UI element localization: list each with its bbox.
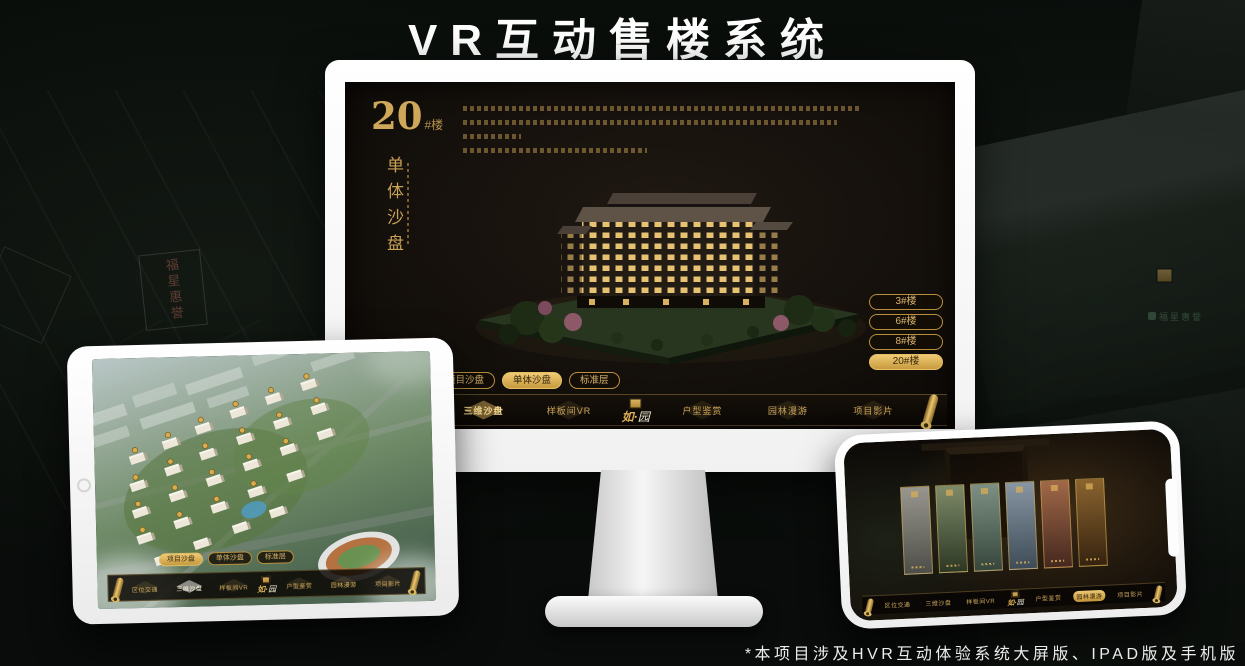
scroll-brush-icon[interactable] [409, 569, 421, 592]
tab-single-sandbox[interactable]: 单体沙盘 [208, 551, 252, 565]
building-heading: 20#楼 [371, 98, 443, 135]
gallery-card-1[interactable] [900, 486, 933, 575]
app-logo-text: 如·园 [622, 411, 650, 423]
developer-sign-watermark: 福星惠誉 [138, 249, 208, 331]
phone-notch [1165, 478, 1180, 556]
seal-icon [262, 575, 271, 583]
nav-item-showroom-vr[interactable]: 样板间VR [536, 401, 602, 419]
nav-item-garden-roam[interactable]: 园林漫游 [1073, 589, 1105, 601]
tablet-app-screen: 项目沙盘 单体沙盘 标准层 区位交通 三维沙盘 样板间VR 如·园 户型鉴赏 园… [92, 351, 436, 609]
building-number-suffix: #楼 [425, 118, 444, 132]
developer-logo-icon [1148, 312, 1156, 320]
tab-project-sandbox[interactable]: 项目沙盘 [159, 552, 203, 566]
seal-icon [1156, 268, 1173, 283]
nav-item-3d-sandbox[interactable]: 三维沙盘 [922, 596, 954, 608]
nav-item-garden-roam[interactable]: 园林漫游 [322, 573, 364, 592]
scroll-brush-icon[interactable] [1154, 584, 1163, 600]
poster-canvas: 福星惠誉 福星惠誉 VR互动售楼系统 20#楼 单体沙盘 [0, 0, 1245, 666]
scroll-brush-icon[interactable] [112, 577, 124, 600]
footnote-text: *本项目涉及HVR互动体验系统大屏版、IPAD版及手机版 [745, 640, 1239, 664]
monitor-stand-base [545, 596, 763, 627]
nav-item-project-film[interactable]: 项目影片 [367, 572, 409, 591]
phone-app-screen: 区位交通 三维沙盘 样板间VR 如·园 户型鉴赏 园林漫游 项目影片 [843, 429, 1178, 622]
building-render [457, 142, 885, 366]
bg-collage-photo [937, 87, 1245, 420]
tablet-mockup: 项目沙盘 单体沙盘 标准层 区位交通 三维沙盘 样板间VR 如·园 户型鉴赏 园… [67, 337, 460, 624]
tablet-home-button[interactable] [77, 478, 91, 492]
gallery-card-5[interactable] [1040, 479, 1073, 568]
gallery-card-2[interactable] [935, 484, 968, 573]
app-logo: 如·园 [257, 575, 276, 593]
page-title: VR互动售楼系统 [0, 4, 1245, 68]
building-selector: 3#楼 6#楼 8#楼 20#楼 [869, 294, 945, 374]
nav-item-location-traffic[interactable]: 区位交通 [124, 578, 166, 597]
nav-item-showroom-vr[interactable]: 样板间VR [963, 594, 998, 607]
nav-item-3d-sandbox[interactable]: 三维沙盘 [451, 401, 517, 419]
gallery-card-4[interactable] [1005, 481, 1038, 570]
nav-item-floorplans[interactable]: 户型鉴赏 [1032, 591, 1064, 603]
nav-item-floorplans[interactable]: 户型鉴赏 [669, 401, 735, 419]
nav-item-showroom-vr[interactable]: 样板间VR [212, 576, 254, 595]
nav-item-project-film[interactable]: 项目影片 [840, 401, 906, 419]
tab-standard-floor[interactable]: 标准层 [257, 550, 294, 564]
building-number: 20 [371, 94, 423, 138]
phone-bottom-nav: 区位交通 三维沙盘 样板间VR 如·园 户型鉴赏 园林漫游 项目影片 [862, 582, 1166, 615]
tab-standard-floor[interactable]: 标准层 [569, 372, 620, 389]
app-logo: 如·园 [622, 398, 650, 423]
developer-logo-watermark: 福星惠誉 [1148, 310, 1203, 323]
gallery-card-6[interactable] [1074, 478, 1107, 567]
scene-gallery [845, 475, 1162, 577]
gallery-card-3[interactable] [970, 482, 1003, 571]
seal-icon [629, 398, 642, 409]
scroll-brush-icon[interactable] [922, 393, 939, 426]
view-tabs: 项目沙盘 单体沙盘 标准层 [435, 372, 620, 389]
scroll-brush-icon[interactable] [865, 597, 874, 613]
nav-item-garden-roam[interactable]: 园林漫游 [755, 401, 821, 419]
building-subtitle: 单体沙盘 [381, 156, 406, 260]
building-button-8[interactable]: 8#楼 [869, 334, 943, 350]
tab-single-sandbox[interactable]: 单体沙盘 [502, 372, 562, 389]
app-logo: 如·园 [1007, 590, 1024, 607]
app-logo-text: 如·园 [1007, 598, 1024, 607]
monitor-stand-neck [588, 470, 718, 600]
building-button-3[interactable]: 3#楼 [869, 294, 943, 310]
nav-item-floorplans[interactable]: 户型鉴赏 [278, 574, 320, 593]
subtitle-english-microtext [407, 160, 409, 244]
app-logo-text: 如·园 [257, 584, 276, 593]
building-button-20[interactable]: 20#楼 [869, 354, 943, 370]
building-button-6[interactable]: 6#楼 [869, 314, 943, 330]
nav-item-3d-sandbox[interactable]: 三维沙盘 [168, 577, 210, 596]
nav-item-location-traffic[interactable]: 区位交通 [881, 598, 913, 610]
nav-item-project-film[interactable]: 项目影片 [1114, 587, 1146, 599]
phone-mockup: 区位交通 三维沙盘 样板间VR 如·园 户型鉴赏 园林漫游 项目影片 [834, 420, 1187, 629]
